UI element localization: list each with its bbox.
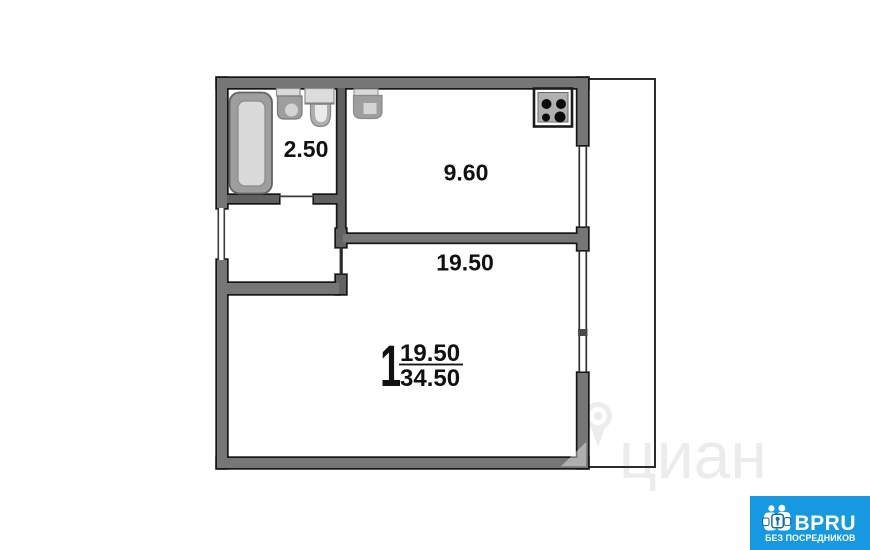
svg-text:циан: циан	[619, 418, 767, 492]
svg-text:19.50: 19.50	[436, 250, 494, 276]
svg-text:BPRU: BPRU	[794, 512, 856, 535]
svg-text:9.60: 9.60	[444, 160, 489, 186]
svg-text:1: 1	[380, 335, 401, 399]
svg-text:19.50: 19.50	[400, 340, 460, 367]
svg-text:34.50: 34.50	[400, 365, 460, 392]
svg-text:БЕЗ ПОСРЕДНИКОВ: БЕЗ ПОСРЕДНИКОВ	[765, 533, 855, 543]
svg-text:2.50: 2.50	[284, 136, 329, 162]
